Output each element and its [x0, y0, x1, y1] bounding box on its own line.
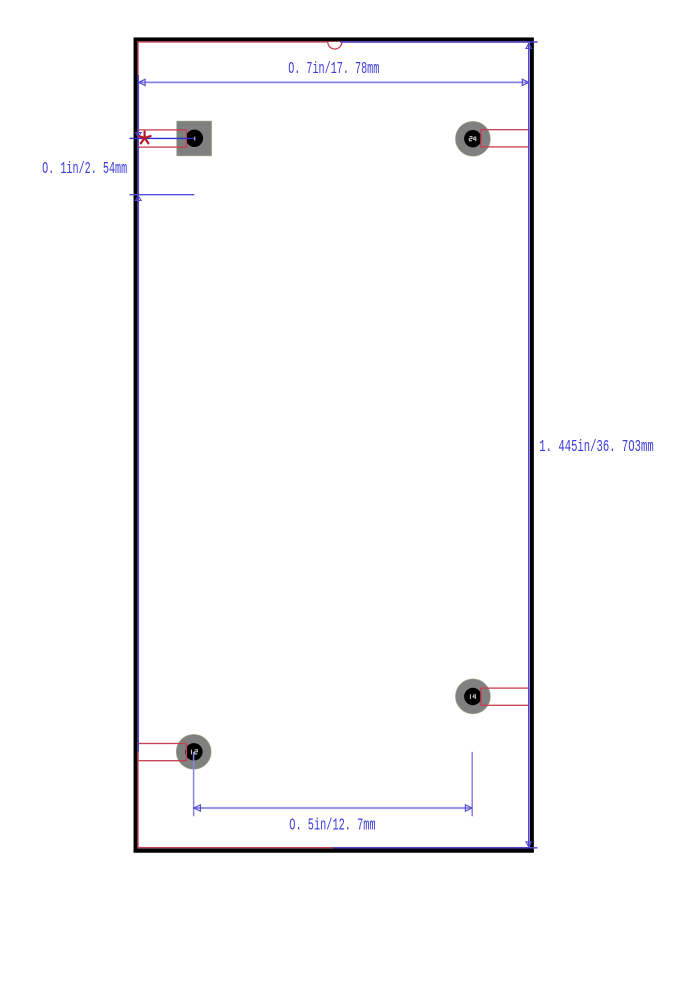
svg-text:O. 1in/2. 54mm: O. 1in/2. 54mm: [42, 160, 127, 179]
svg-text:O. 7in/17. 78mm: O. 7in/17. 78mm: [288, 60, 379, 79]
svg-text:1. 445in/36. 7O3mm: 1. 445in/36. 7O3mm: [539, 438, 653, 457]
svg-text:O. 5in/12. 7mm: O. 5in/12. 7mm: [289, 817, 375, 836]
